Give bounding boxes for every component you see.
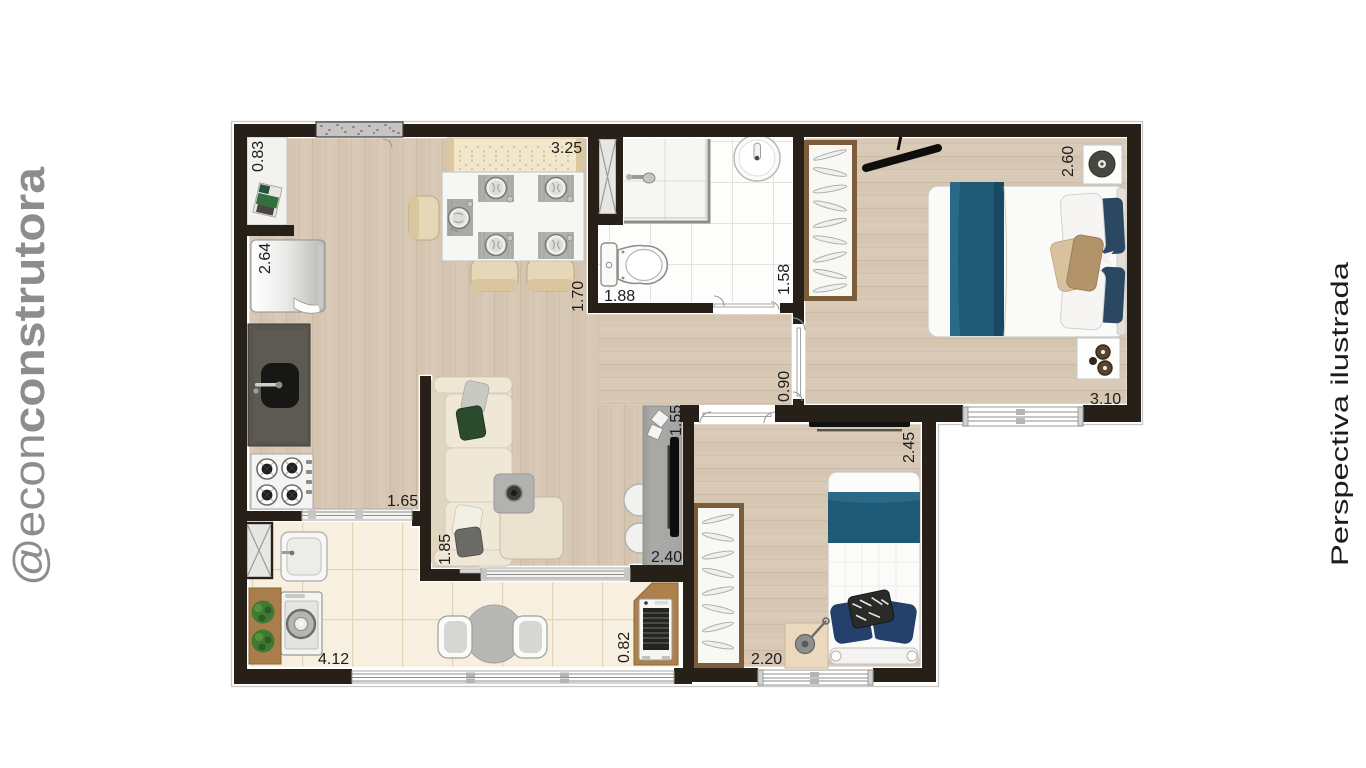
svg-text:1.65: 1.65 xyxy=(387,493,418,510)
svg-text:1.55: 1.55 xyxy=(668,405,685,436)
svg-text:1.58: 1.58 xyxy=(776,264,793,295)
svg-text:1.70: 1.70 xyxy=(570,281,587,312)
svg-text:2.64: 2.64 xyxy=(257,243,274,274)
svg-text:0.90: 0.90 xyxy=(776,371,793,402)
svg-text:2.60: 2.60 xyxy=(1060,146,1077,177)
svg-text:0.83: 0.83 xyxy=(250,141,267,172)
svg-text:2.20: 2.20 xyxy=(751,651,782,668)
svg-text:1.85: 1.85 xyxy=(437,534,454,565)
svg-text:3.10: 3.10 xyxy=(1090,391,1121,408)
svg-text:2.45: 2.45 xyxy=(901,432,918,463)
svg-text:3.25: 3.25 xyxy=(551,140,582,157)
svg-text:2.40: 2.40 xyxy=(651,549,682,566)
svg-text:4.12: 4.12 xyxy=(318,651,349,668)
svg-text:0.82: 0.82 xyxy=(616,632,633,663)
svg-text:1.88: 1.88 xyxy=(604,288,635,305)
svg-text:Perspectiva ilustrada: Perspectiva ilustrada xyxy=(1327,261,1354,566)
svg-text:@econconstrutora: @econconstrutora xyxy=(5,166,54,586)
